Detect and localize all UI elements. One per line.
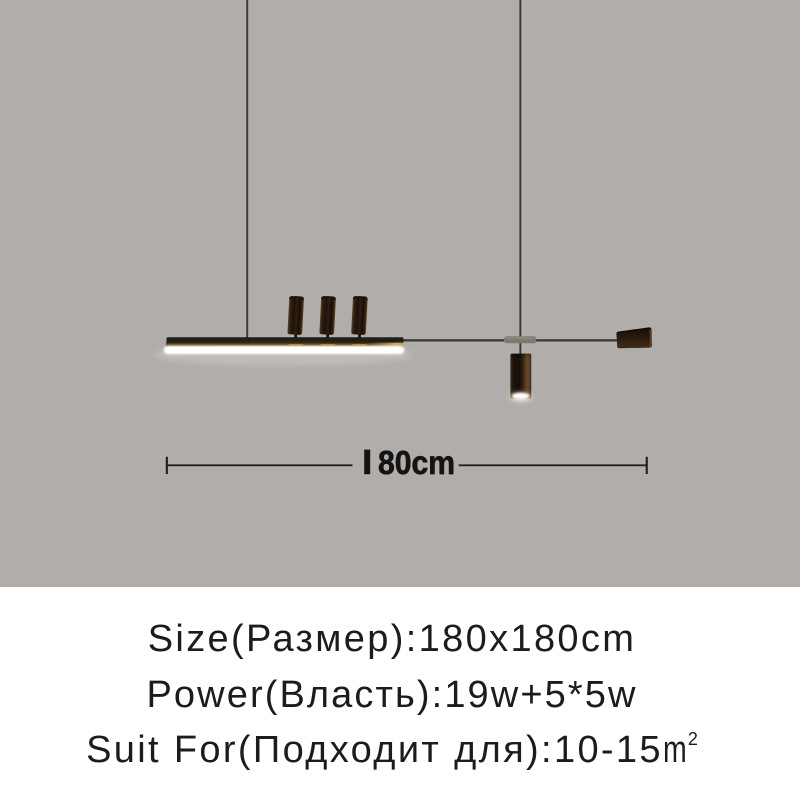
svg-text:80cm: 80cm (378, 444, 455, 482)
